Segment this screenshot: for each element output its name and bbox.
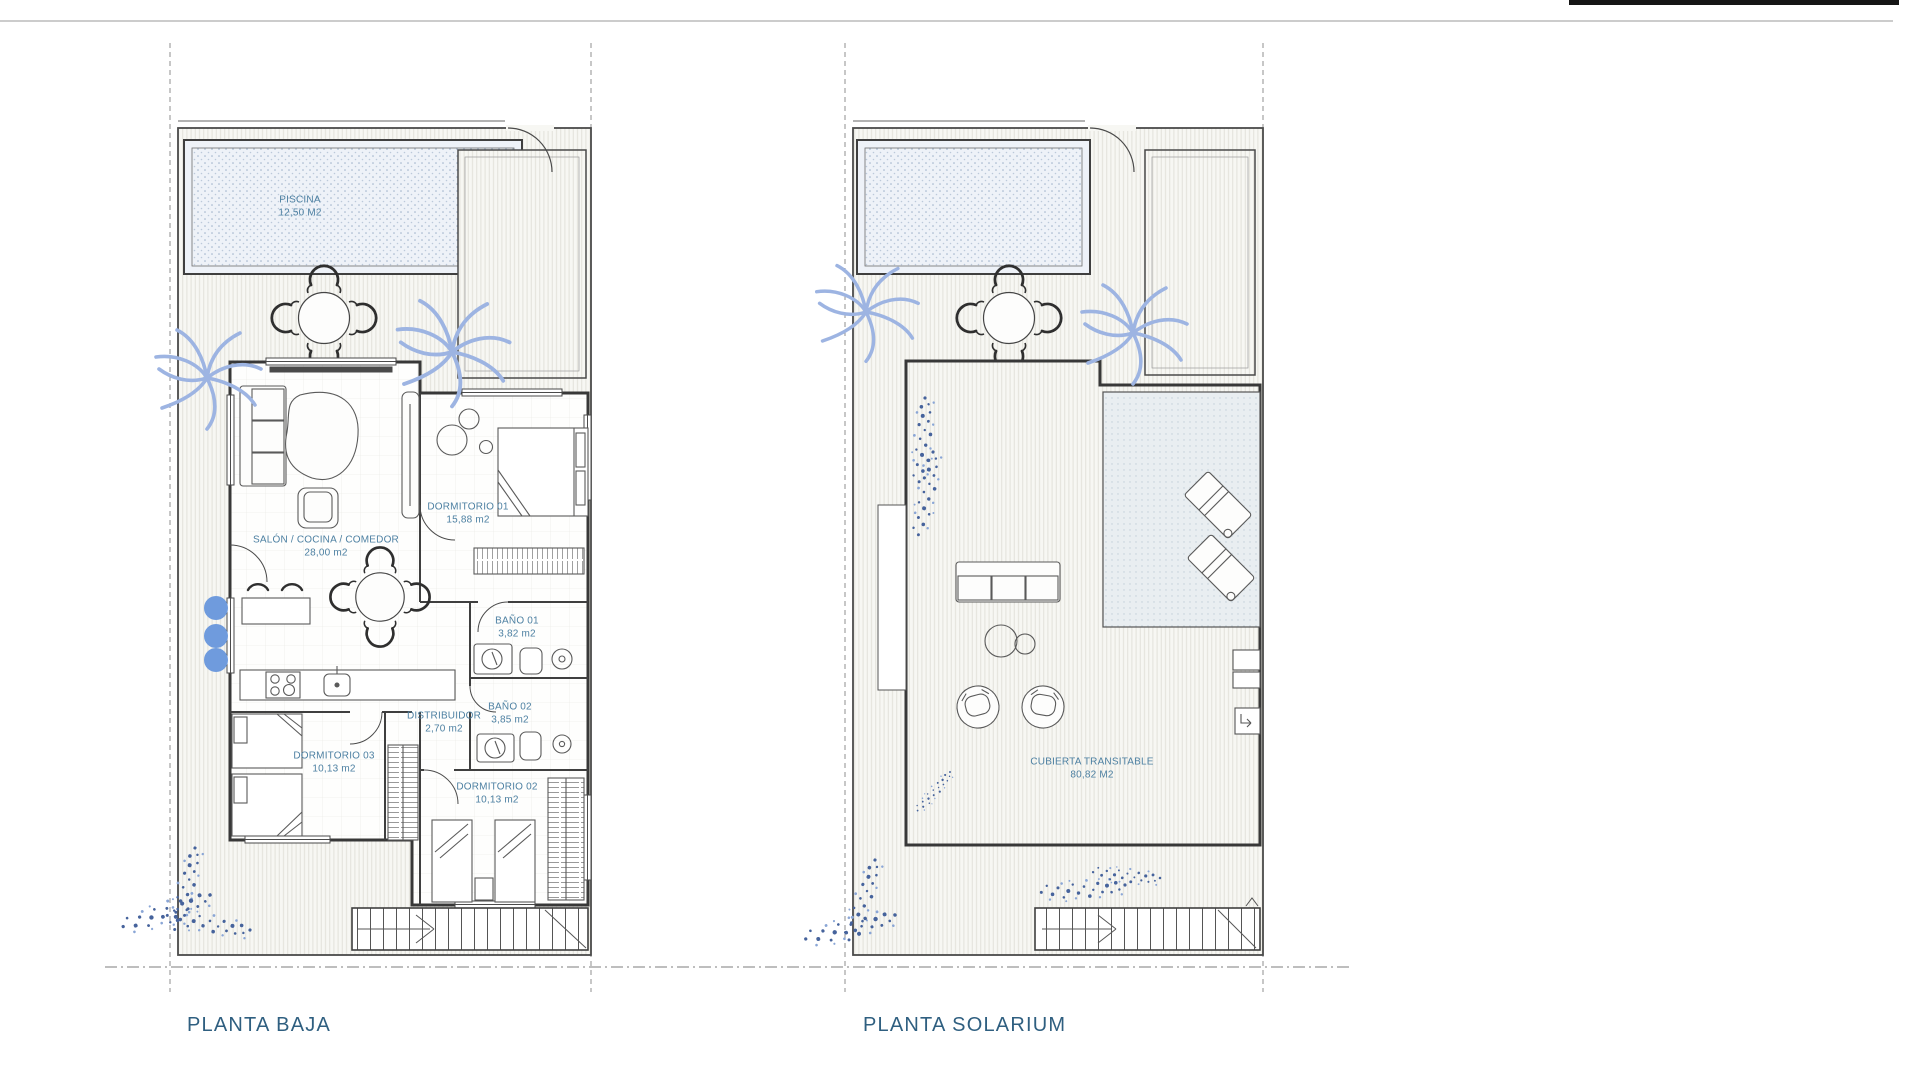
room-area: 3,82 m2 (495, 628, 539, 641)
plan-planta-solarium (801, 121, 1263, 955)
room-area: 28,00 m2 (253, 547, 399, 560)
covered-area (1103, 392, 1260, 627)
room-area: 3,85 m2 (488, 714, 532, 727)
floorplan-sheet: PISCINA 12,50 M2 SALÓN / COCINA / COMEDO… (0, 0, 1920, 1080)
room-name: BAÑO 02 (488, 702, 532, 715)
room-label-bano-02: BAÑO 02 3,85 m2 (488, 702, 532, 727)
room-area: 15,88 m2 (427, 514, 508, 527)
room-label-dormitorio-02: DORMITORIO 02 10,13 m2 (456, 782, 537, 807)
hob (266, 672, 300, 698)
rug (286, 392, 359, 479)
room-name: DISTRIBUIDOR (407, 711, 481, 724)
room-area: 12,50 M2 (278, 207, 321, 220)
room-area: 10,13 m2 (293, 763, 374, 776)
toilet (520, 648, 542, 674)
plan-title-planta-baja: PLANTA BAJA (187, 1014, 331, 1037)
side-planter (878, 505, 906, 690)
pool (857, 140, 1090, 274)
nightstand (475, 878, 493, 900)
room-name: SALÓN / COCINA / COMEDOR (253, 535, 399, 548)
top-right-black-bar (1569, 0, 1899, 5)
room-label-dormitorio-01: DORMITORIO 01 15,88 m2 (427, 502, 508, 527)
room-name: PISCINA (278, 195, 321, 208)
room-label-distribuidor: DISTRIBUIDOR 2,70 m2 (407, 711, 481, 736)
toilet (520, 732, 541, 760)
room-name: DORMITORIO 02 (456, 782, 537, 795)
bushes (204, 596, 228, 672)
room-name: DORMITORIO 03 (293, 751, 374, 764)
room-name: BAÑO 01 (495, 616, 539, 629)
room-label-dormitorio-03: DORMITORIO 03 10,13 m2 (293, 751, 374, 776)
room-area: 10,13 m2 (456, 794, 537, 807)
room-label-bano-01: BAÑO 01 3,82 m2 (495, 616, 539, 641)
room-label-salon-cocina-comedor: SALÓN / COCINA / COMEDOR 28,00 m2 (253, 535, 399, 560)
single-bed (495, 820, 535, 902)
upper-terrace (458, 150, 586, 378)
room-name: CUBIERTA TRANSITABLE (1030, 757, 1153, 770)
single-bed (432, 820, 472, 902)
breakfast-bar (242, 598, 310, 624)
room-label-piscina: PISCINA 12,50 M2 (278, 195, 321, 220)
wardrobe (474, 548, 584, 574)
stairs (352, 908, 588, 950)
room-label-cubierta-transitable: CUBIERTA TRANSITABLE 80,82 M2 (1030, 757, 1153, 782)
room-area: 80,82 M2 (1030, 769, 1153, 782)
room-name: DORMITORIO 01 (427, 502, 508, 515)
plan-title-planta-solarium: PLANTA SOLARIUM (863, 1014, 1066, 1037)
room-area: 2,70 m2 (407, 723, 481, 736)
